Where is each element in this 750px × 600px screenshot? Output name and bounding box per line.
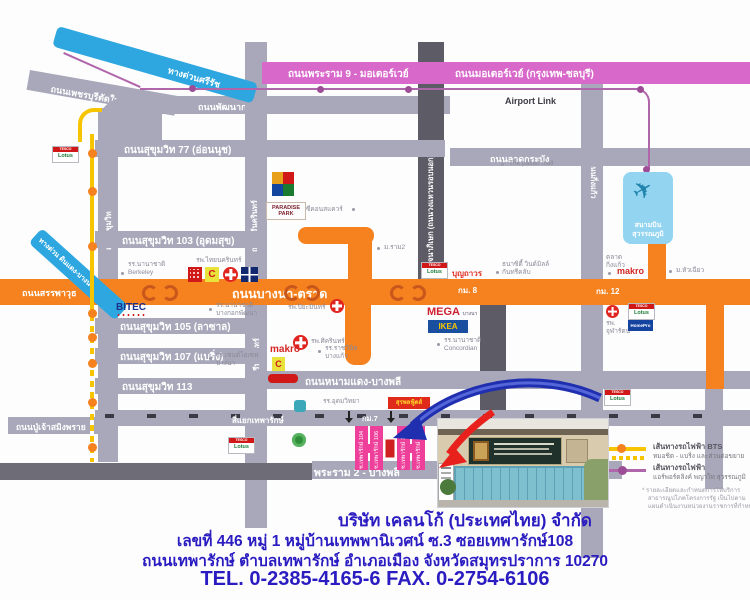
paseo-mall-label: The paseo mall <box>509 160 553 168</box>
landmark-dot <box>496 271 499 274</box>
airport-link-station <box>189 85 196 92</box>
map-canvas: ถนนเพชรบุรีตัดใหม่ ถนนพัฒนาการ ถนนสุขุมว… <box>0 0 750 600</box>
road-sukhumvit107-label: ถนนสุขุมวิท 107 (แบริ่ง) <box>120 350 223 365</box>
road-phatthanakan <box>120 96 450 114</box>
lotus-text: Lotus <box>53 152 78 161</box>
thai-nakarin-hospital-label: รพ.ไทยนครินทร์ <box>196 257 241 265</box>
makro-srinakarin-label: makro <box>270 344 300 355</box>
concordian-school-label: รร.นานาชาติConcordian <box>444 337 481 352</box>
road-motorway-label: ถนนมอเตอร์เวย์ (กรุงเทพ-ชลบุรี) <box>455 67 594 82</box>
big-c-logo: C <box>205 267 219 282</box>
thana-city-label: ธนาซิตี้ วินด์มิลล์กันทรีคลับ <box>502 261 549 276</box>
airport-link-station <box>317 86 324 93</box>
piyamin-hospital-label: รพ.ปิยะมินทร์ <box>288 304 326 312</box>
landmark-dot <box>209 357 212 360</box>
road-sanphawut-label: ถนนสรรพาวุธ <box>22 286 76 300</box>
legend-note-line1: * รายละเอียดและกำหนดการให้บริการ <box>642 487 740 495</box>
road-sukhumvit103-label: ถนนสุขุมวิท 103 (อุดมสุข) <box>122 234 234 249</box>
road-airport-v <box>648 240 666 282</box>
uturn-icon <box>390 285 426 301</box>
airport-link-curve <box>630 88 650 170</box>
road-connector-ram2-v <box>348 232 372 282</box>
landmark-dot <box>352 208 355 211</box>
road-pujao-label: ถนนปู่เจ้าสมิงพราย <box>16 420 86 434</box>
airport-link-line <box>140 88 642 90</box>
bts-line-dashed <box>90 304 94 462</box>
airport-link-station <box>405 86 412 93</box>
bts-station <box>88 309 97 318</box>
udom-school-label: รร.อุดมวิทยา <box>323 398 360 406</box>
bts-line-solid <box>90 134 94 304</box>
airport-label: สนามบินสุวรรณภูมิ <box>623 222 673 239</box>
landmark-dot <box>318 350 321 353</box>
bts-station <box>88 242 97 251</box>
landmark-logo <box>294 400 306 412</box>
bts-station <box>88 149 97 158</box>
company-phone: TEL. 0-2385-4165-6 FAX. 0-2754-6106 <box>0 568 750 591</box>
landmark-dot <box>377 247 380 250</box>
airport-link-station <box>637 86 644 93</box>
soi-104-label: ซ.เทพารักษ์ 104 <box>358 431 366 469</box>
seacon-square-label: ซีคอนสแควร์ <box>306 206 343 214</box>
landmark-dot <box>209 308 212 311</box>
bts-station <box>88 333 97 342</box>
green-landmark-logo <box>292 433 306 447</box>
tesco-lotus-logo: TESCO Lotus <box>628 303 655 320</box>
landmark-dot <box>437 343 440 346</box>
ram2-university-label: ม.ราม2 <box>384 244 405 252</box>
road-sukhumvit77-label: ถนนสุขุมวิท 77 (อ่อนนุช) <box>124 143 231 158</box>
airport-link-label: Airport Link <box>505 96 556 106</box>
airplane-icon: ✈ <box>627 173 659 208</box>
road-sukhumvit113-label: ถนนสุขุมวิท 113 <box>122 380 192 395</box>
boonthavorn-label: บุญถาวร <box>452 267 482 280</box>
chularat-hospital-cross-icon <box>606 305 619 318</box>
red-store-logo <box>268 374 298 383</box>
lotus-text: Lotus <box>229 443 254 452</box>
lotus-text: Lotus <box>629 309 654 318</box>
chularat-hospital-label: รพ.จุฬารัตน์ <box>606 320 630 335</box>
bangkok-patana-school-label: รร.นานาชาติบางกอกพัฒนา <box>216 302 257 317</box>
landmark-dot <box>669 270 672 273</box>
km8-label: กม. 8 <box>458 284 477 297</box>
road-kingkaew-label: ถนนกิ่งแก้ว <box>587 162 599 199</box>
bts-station <box>88 443 97 452</box>
road-rama2-dark <box>0 463 312 480</box>
blue-landmark-logo <box>241 267 258 282</box>
bts-station <box>88 398 97 407</box>
thepharak-junction-label: สี่แยกเทพารักษ์ <box>232 414 284 427</box>
km12-label: กม. 12 <box>596 285 619 298</box>
tesco-lotus-logo: TESCO Lotus <box>52 146 79 163</box>
road-rama9-label: ถนนพระราม 9 - มอเตอร์เวย์ <box>288 67 409 82</box>
direction-arrows <box>375 378 625 488</box>
bitec-logo: BITEC <box>116 302 146 317</box>
legend-arl-subtitle: แอร์พอร์ตลิงค์ พญาไท สุวรรณภูมิ <box>653 472 746 482</box>
tesco-lotus-logo: TESCO Lotus <box>228 437 255 454</box>
legend-bts-subtitle: หมอชิต - แบริ่ง และส่วนต่อขยาย <box>653 451 744 461</box>
uturn-icon <box>142 285 178 301</box>
berkeley-school-label: รร.นานาชาติBerkeley <box>128 261 165 276</box>
paradise-park-label: PARADISE PARK <box>266 202 306 220</box>
homepro-logo: HomePro <box>628 320 653 331</box>
landmark-dot <box>608 272 611 275</box>
bts-station <box>88 359 97 368</box>
entrance-arrow-icon <box>348 411 350 419</box>
piyamin-cross-icon <box>330 299 344 313</box>
road-kingkaew-south-v <box>706 303 724 389</box>
big-c-logo: C <box>272 357 285 371</box>
suvarnabhumi-airport-box: ✈ สนามบินสุวรรณภูมิ <box>623 172 673 244</box>
paradise-park-logo <box>272 172 294 196</box>
legend-note-line2: สาธารณูปโภคโครงการรัฐ เป็นไปตาม <box>648 495 746 503</box>
central-logo <box>188 267 202 282</box>
ratchawinit-school-label: รร.ราชวินิตบางแก้ว <box>325 345 358 360</box>
mega-bangna-logo: MEGA บางนา <box>427 307 477 320</box>
landmark-dot <box>121 272 124 275</box>
road-sukhumvit105-label: ถนนสุขุมวิท 105 (ลาซาล) <box>120 320 231 335</box>
uturn-icon <box>284 285 320 301</box>
ikea-logo: IKEA <box>428 320 468 333</box>
tesco-lotus-logo: TESCO Lotus <box>421 262 448 279</box>
stjoseph-school-label: รร.เซนต์โยเซฟบางนา <box>216 352 259 367</box>
makro-kingkaew-label: makro <box>617 266 644 276</box>
lotus-text: Lotus <box>422 268 447 277</box>
bts-station <box>88 187 97 196</box>
landmark-dot <box>501 163 504 166</box>
huachiew-university-label: ม.หัวเฉียว <box>676 267 704 275</box>
hospital-cross-icon <box>223 267 238 282</box>
